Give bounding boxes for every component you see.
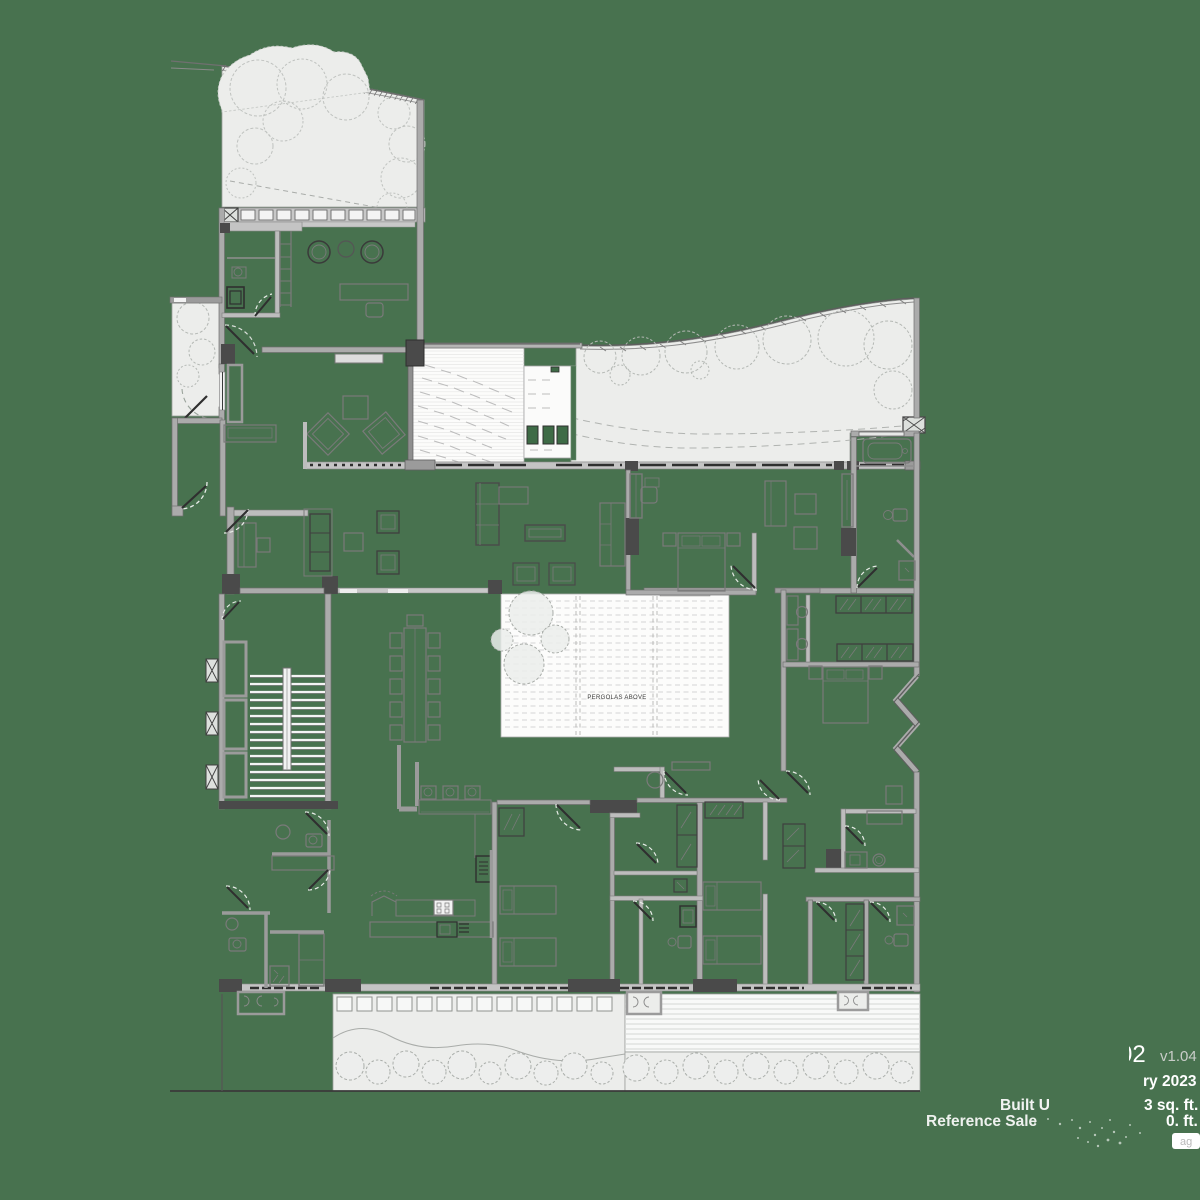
- svg-text:v1.04: v1.04: [1160, 1048, 1197, 1065]
- svg-text:3 sq. ft.: 3 sq. ft.: [1144, 1097, 1198, 1114]
- svg-text:Reference Sale: Reference Sale: [926, 1113, 1038, 1130]
- svg-text:0. ft.: 0. ft.: [1166, 1113, 1198, 1130]
- svg-text:ag: ag: [1180, 1136, 1192, 1148]
- svg-text:Built U: Built U: [1000, 1097, 1050, 1114]
- svg-text:PERGOLAS ABOVE: PERGOLAS ABOVE: [587, 695, 646, 701]
- svg-text:ry 2023: ry 2023: [1143, 1073, 1197, 1090]
